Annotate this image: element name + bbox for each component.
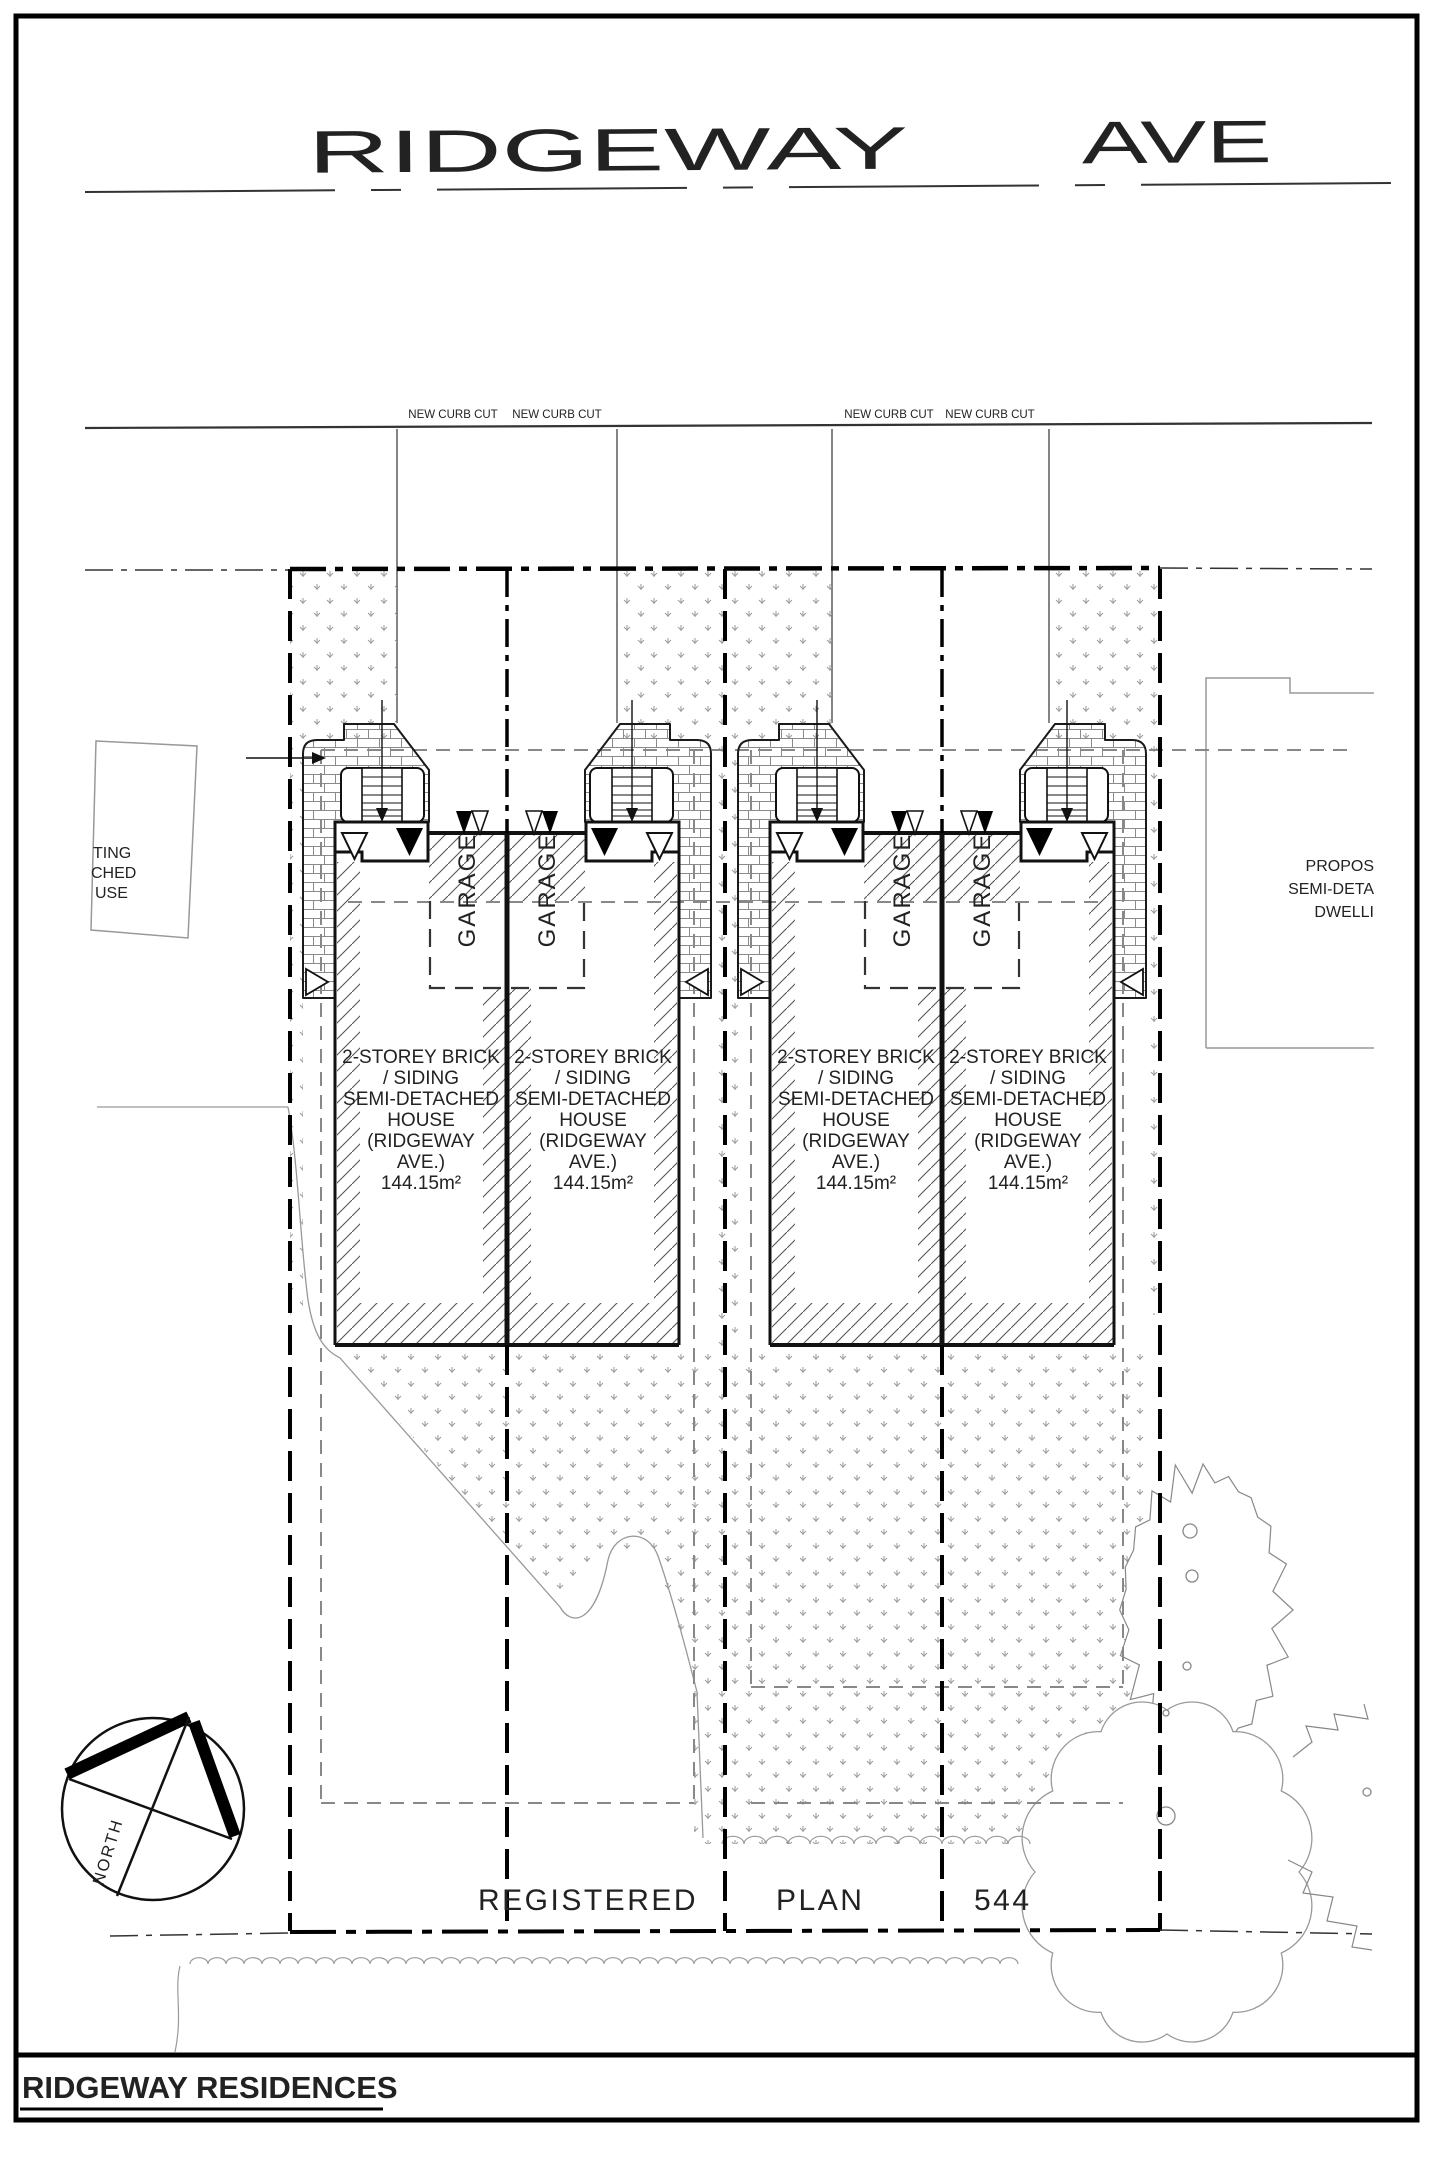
- existing-house-outline: [91, 741, 197, 938]
- garage-label-2: GARAGE: [534, 833, 561, 948]
- tree-canopy-cloud: [1022, 1702, 1312, 2042]
- label-line: 2-STOREY BRICK: [949, 1047, 1107, 1068]
- label-line: AVE.): [397, 1152, 445, 1173]
- curb-cut-label-1: NEW CURB CUT: [408, 409, 497, 421]
- garage-label-4: GARAGE: [969, 833, 996, 948]
- label-line: 2-STOREY BRICK: [342, 1047, 500, 1068]
- plan-sheet: RIDGEWAY AVE NEW CURB CUT NEW CURB CUT N…: [0, 0, 1440, 2160]
- label-line: (RIDGEWAY: [539, 1131, 647, 1152]
- street-name-main: RIDGEWAY: [308, 115, 908, 186]
- plan-word: PLAN: [776, 1884, 864, 1917]
- label-line: HOUSE: [559, 1110, 627, 1131]
- label-line: HOUSE: [387, 1110, 455, 1131]
- street-name-suffix: AVE: [1082, 108, 1272, 176]
- label-line: (RIDGEWAY: [367, 1131, 475, 1152]
- drawing-title: RIDGEWAY RESIDENCES: [22, 2070, 398, 2105]
- existing-house-label-line3: USE: [95, 885, 128, 902]
- label-line: 144.15m²: [816, 1173, 896, 1194]
- curb-cut-label-4: NEW CURB CUT: [945, 409, 1034, 421]
- label-line: AVE.): [569, 1152, 617, 1173]
- label-line: (RIDGEWAY: [974, 1131, 1082, 1152]
- garage-label-3: GARAGE: [889, 833, 916, 948]
- label-line: 2-STOREY BRICK: [514, 1047, 672, 1068]
- street-group: RIDGEWAY AVE: [308, 108, 1272, 186]
- site-plan-drawing: RIDGEWAY AVE NEW CURB CUT NEW CURB CUT N…: [0, 0, 1440, 2160]
- proposed-dwelling-label-line2: SEMI-DETA: [1288, 881, 1374, 898]
- label-line: HOUSE: [994, 1110, 1062, 1131]
- existing-house: TING CHED USE: [91, 741, 197, 938]
- label-line: / SIDING: [555, 1068, 631, 1089]
- label-line: HOUSE: [822, 1110, 890, 1131]
- label-line: SEMI-DETACHED: [515, 1089, 671, 1110]
- garage-label-1: GARAGE: [454, 833, 481, 948]
- curb-cut-label-2: NEW CURB CUT: [512, 409, 601, 421]
- existing-house-label-line2: CHED: [91, 865, 136, 882]
- curb-cut-label-3: NEW CURB CUT: [844, 409, 933, 421]
- label-line: AVE.): [832, 1152, 880, 1173]
- label-line: 144.15m²: [553, 1173, 633, 1194]
- proposed-dwelling-label-line3: DWELLI: [1314, 904, 1374, 921]
- proposed-dwelling-label-line1: PROPOS: [1306, 858, 1374, 875]
- label-line: 144.15m²: [988, 1173, 1068, 1194]
- label-line: / SIDING: [990, 1068, 1066, 1089]
- label-line: AVE.): [1004, 1152, 1052, 1173]
- registered-word: REGISTERED: [478, 1884, 698, 1917]
- existing-house-label-line1: TING: [93, 845, 131, 862]
- label-line: 144.15m²: [381, 1173, 461, 1194]
- label-line: 2-STOREY BRICK: [777, 1047, 935, 1068]
- label-line: SEMI-DETACHED: [778, 1089, 934, 1110]
- label-line: / SIDING: [818, 1068, 894, 1089]
- label-line: SEMI-DETACHED: [343, 1089, 499, 1110]
- label-line: (RIDGEWAY: [802, 1131, 910, 1152]
- label-line: / SIDING: [383, 1068, 459, 1089]
- label-line: SEMI-DETACHED: [950, 1089, 1106, 1110]
- north-compass: NORTH: [62, 1717, 244, 1900]
- plan-number: 544: [974, 1884, 1032, 1917]
